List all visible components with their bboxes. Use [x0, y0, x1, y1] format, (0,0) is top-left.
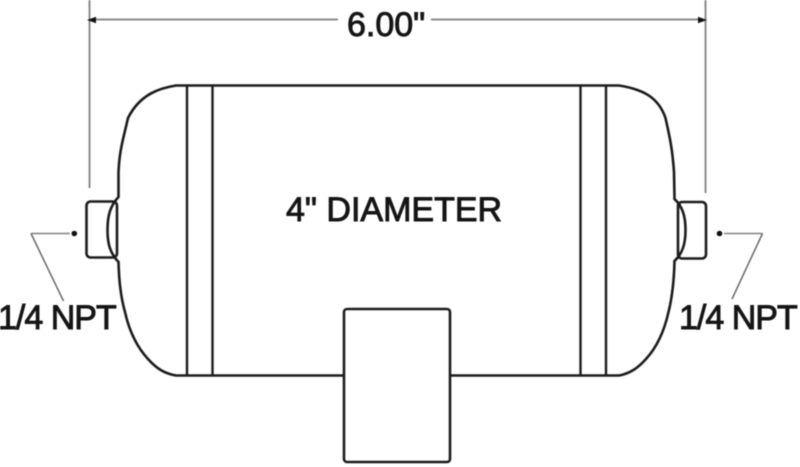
svg-text:1/4 NPT: 1/4 NPT	[679, 299, 797, 337]
svg-text:4" DIAMETER: 4" DIAMETER	[286, 191, 502, 229]
svg-text:1/4 NPT: 1/4 NPT	[0, 299, 116, 337]
svg-text:6.00": 6.00"	[347, 6, 425, 44]
